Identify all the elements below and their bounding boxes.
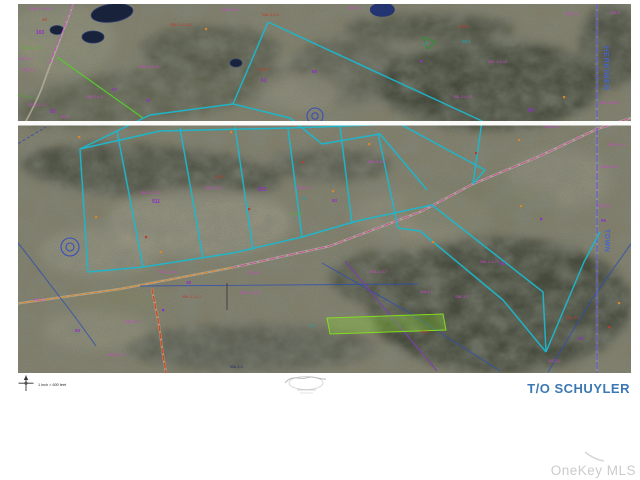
parcel-label: SBL 3-4-25 [600, 101, 619, 105]
parcel-label: 90 [578, 336, 584, 341]
parcel-label: SBL 3-4-47 [453, 95, 472, 99]
parcel-label: SBL 2-3-17 [182, 295, 201, 299]
parcel-label: 108.4-1 [420, 290, 433, 294]
parcel-label: SBL 2-4-5 [86, 95, 103, 99]
parcel-label: 93 [500, 261, 506, 266]
parcel-label: 98.1 [462, 39, 471, 44]
parcel-label: 75A-4-7 [248, 271, 262, 275]
parcel-label: 108.2-1 [33, 298, 46, 302]
aerial-photo: SBL 2-4-14.146103SBL 2-4-6.2103.4-1-7SBL… [0, 1, 640, 373]
parcel-label: SBL 3-4 [297, 186, 311, 190]
parcel-label: 103.2-1 [548, 359, 561, 363]
map-mark [248, 208, 250, 210]
map-mark [520, 205, 522, 207]
parcel-label: SBL 4-4 [565, 12, 579, 16]
parcel-label: SBL 2-4 [22, 68, 36, 72]
parcel-label: SBL 3-2 [545, 125, 559, 129]
tax-map-image: SBL 2-4-14.146103SBL 2-4-6.2103.4-1-7SBL… [0, 0, 640, 480]
parcel-label: 27 [112, 87, 118, 92]
parcel-label: 46 [42, 17, 48, 22]
parcel-label: SBL 2-4-74 [140, 65, 159, 69]
scan-seam [0, 121, 640, 126]
map-mark [230, 131, 232, 133]
map-mark [475, 152, 477, 154]
parcel-label: SBL 2-4-7 [370, 270, 387, 274]
parcel-label: 39 [528, 108, 534, 114]
map-mark [518, 139, 520, 141]
map-mark [540, 218, 542, 220]
parcel-label: SBL 2-2-13 [240, 291, 259, 295]
scale-text: 1 inch = 600 feet [38, 383, 67, 387]
parcel-label: 78 [301, 196, 307, 201]
map-mark [432, 241, 434, 243]
parcel-label: 93 [75, 328, 81, 333]
map-mark [608, 326, 610, 328]
parcel-label: SBL 4-6-2 [262, 13, 279, 17]
parcel-label: SBL 3-7 [455, 295, 469, 299]
parcel-label: 96 [601, 218, 607, 223]
map-mark [332, 190, 334, 192]
parcel-label: SBL 2-2-1 [205, 186, 222, 190]
parcel-label: 103.4-1 [348, 6, 361, 10]
parcel-label: 103.4-1-7 [18, 57, 34, 61]
parcel-label: 103.2 [60, 115, 70, 119]
mls-listing-photo-tax-map: SBL 2-4-14.146103SBL 2-4-6.2103.4-1-7SBL… [0, 0, 640, 480]
map-mark [145, 236, 147, 238]
map-mark [205, 28, 207, 30]
parcel-label: 88 [312, 69, 318, 74]
parcel-label: 17 [424, 41, 430, 46]
parcel-label: 103 [36, 30, 45, 36]
parcel-label: SBL 2-3 [230, 365, 243, 369]
parcel-label: SBL 2-2-7.1 [140, 191, 160, 195]
map-mark [563, 96, 565, 98]
map-mark [618, 302, 620, 304]
parcel-label: SBL 2-6 [125, 320, 139, 324]
surveyor-stamp [285, 377, 326, 394]
parcel-label: SBL 4-4-5 [601, 165, 618, 169]
parcel-label: SBL 3-4 [598, 204, 612, 208]
parcel-label: 103.4 [458, 24, 469, 29]
parcel-label: SBL 3-1 [566, 316, 580, 320]
parcel-label: 103-4 [258, 67, 269, 72]
town-title: T/O SCHUYLER [527, 381, 630, 396]
parcel-label: SBL 2-4-75 [480, 260, 499, 264]
map-mark [368, 143, 370, 145]
north-compass [19, 376, 34, 392]
parcel-label: 61 [261, 78, 267, 84]
parcel-label: 48 [186, 280, 192, 285]
parcel-label: 93 [50, 109, 56, 115]
map-mark [162, 309, 164, 311]
parcel-label: SBL 2-4-6.2 [22, 46, 42, 50]
parcel-label: 34 [310, 323, 315, 328]
map-mark [95, 216, 97, 218]
parcel-label: SBL 2-3-4 [108, 353, 125, 357]
map-mark [420, 60, 422, 62]
parcel-label: 100-14 [290, 211, 303, 216]
parcel-label: 108.4 [420, 329, 431, 334]
map-mark [302, 161, 304, 163]
parcel-label: SBL 2-3-14 [158, 270, 177, 274]
parcel-label: SBL 2-4-14.2 [170, 23, 192, 27]
onekey-mls-watermark: OneKey MLS [551, 463, 636, 478]
parcel-label: 93 [332, 198, 338, 203]
parcel-label: SBL 4-6-1 [222, 8, 239, 12]
parcel-label: 57 [146, 98, 152, 103]
parcel-label: 103.4 [214, 174, 225, 179]
parcel-label: 921 [258, 187, 267, 193]
parcel-label: 264-4 [610, 11, 620, 15]
parcel-label: 911 [152, 199, 160, 205]
county-boundary-label: HERKIMER [602, 46, 611, 91]
parcel-label: SBL 2-4-14.1 [30, 7, 52, 11]
watermark-swoosh [585, 452, 604, 461]
parcel-label: SBL 4-4-12 [488, 60, 507, 64]
parcel-label: SBL 3-4-7 [368, 160, 385, 164]
map-mark [78, 136, 80, 138]
town-boundary-label: TOWN [603, 229, 610, 252]
parcel-label: 103.2-1-2.1 [28, 103, 47, 107]
map-mark [160, 251, 162, 253]
parcel-label: SBL 3-4-4 [608, 143, 625, 147]
